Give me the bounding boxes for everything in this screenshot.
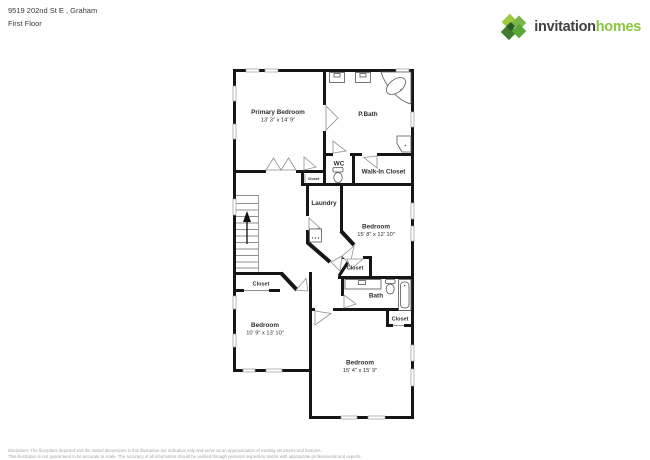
room-dims-bedroom-2: 15' 8" x 12' 10" xyxy=(357,232,395,238)
room-label-bedroom-2: Bedroom xyxy=(362,224,390,231)
room-label-closet-left: Closet xyxy=(253,282,270,288)
sink-icon xyxy=(345,280,381,290)
room-label-laundry: Laundry xyxy=(311,200,337,207)
shower-icon xyxy=(397,136,411,152)
room-label-wc: WC xyxy=(334,161,345,168)
room-label-bath: Bath xyxy=(369,293,383,300)
room-dims-bedroom-3: 10' 9" x 13' 10" xyxy=(246,331,284,337)
disclaimer-line-2: This illustration is not guaranteed to b… xyxy=(8,454,648,460)
room-label-closet-br: Closet xyxy=(392,317,409,323)
room-dims-primary-bedroom: 13' 3" x 14' 9" xyxy=(261,118,295,124)
corner-bathtub-icon xyxy=(381,72,411,104)
sink-icon xyxy=(356,73,371,83)
room-label-closet-mid: Closet xyxy=(347,266,364,272)
staircase xyxy=(236,195,259,272)
room-label-walk-in-closet: Walk-In Closet xyxy=(362,169,407,176)
room-label-bedroom-3: Bedroom xyxy=(251,322,279,329)
room-label-closet-hall: Closet xyxy=(308,177,320,181)
door-swings xyxy=(266,106,377,325)
stairs-up-arrow-icon xyxy=(243,211,251,244)
floor-plan: Primary Bedroom 13' 3" x 14' 9" P.Bath W… xyxy=(0,0,650,460)
room-label-pbath: P.Bath xyxy=(358,111,378,118)
toilet-icon xyxy=(386,280,396,295)
room-dims-bedroom-4: 15' 4" x 15' 9" xyxy=(343,368,377,374)
sink-icon xyxy=(330,73,345,83)
room-labels: Primary Bedroom 13' 3" x 14' 9" P.Bath W… xyxy=(246,109,408,374)
toilet-icon xyxy=(333,168,343,183)
disclaimer: Disclaimer: The floorplans depicted and … xyxy=(8,448,648,460)
room-label-bedroom-4: Bedroom xyxy=(346,360,374,367)
room-label-primary-bedroom: Primary Bedroom xyxy=(251,109,305,116)
bathtub-icon xyxy=(399,280,412,311)
washer-icon xyxy=(310,229,322,242)
